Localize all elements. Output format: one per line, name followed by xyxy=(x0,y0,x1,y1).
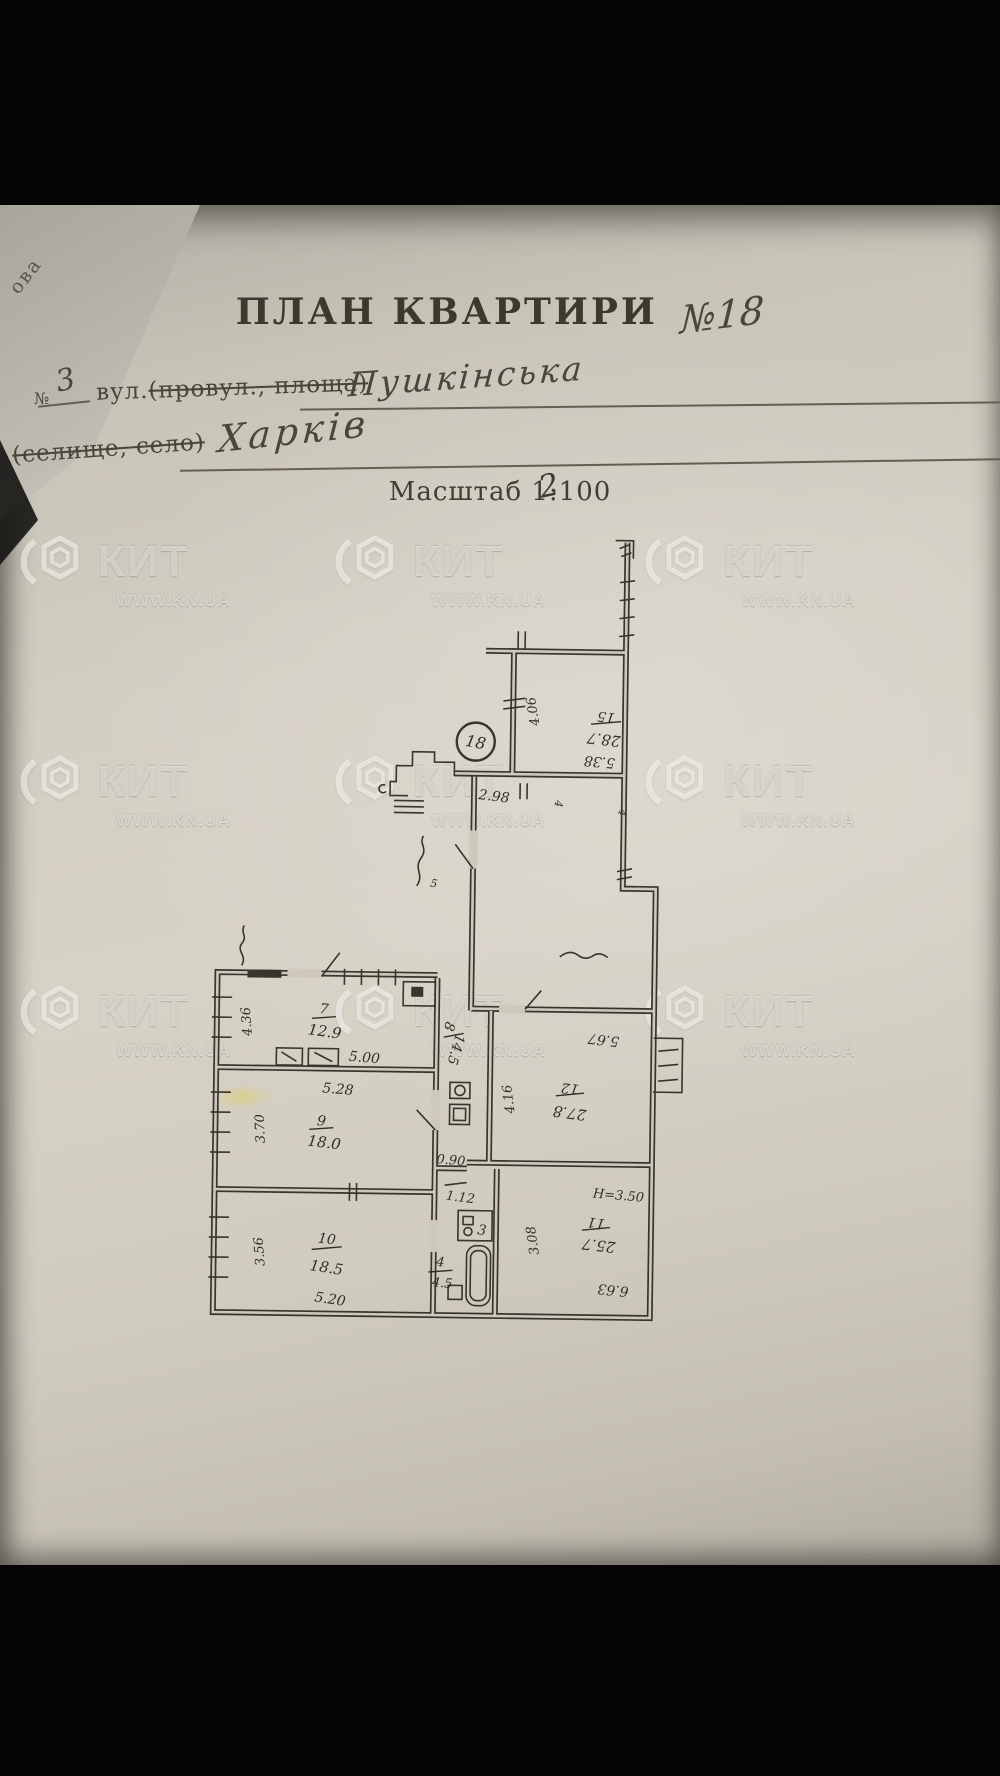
dim-112: 1.12 xyxy=(445,1189,476,1208)
document-title: ПЛАН КВАРТИРИ xyxy=(236,291,658,333)
city-line: (селище, село) Харків xyxy=(0,420,1000,480)
bay-window xyxy=(653,1038,683,1092)
room10-area: 18.5 xyxy=(309,1256,345,1279)
mark-4b: 4 xyxy=(615,807,629,817)
room7-width: 5.00 xyxy=(348,1049,380,1068)
room11-area: 25.7 xyxy=(581,1234,618,1256)
room10-width: 5.20 xyxy=(313,1289,346,1310)
dim-090: 0.90 xyxy=(436,1152,466,1169)
floor-plan-drawing: 18 15 28.7 5.38 4.06 2.98 4 4 5 7 12.9 5… xyxy=(164,526,695,1353)
room8-area: 14.5 xyxy=(444,1032,468,1066)
street-underline xyxy=(300,401,1000,410)
bathtub xyxy=(448,1245,491,1306)
handwritten-squiggles xyxy=(240,833,610,970)
street-name-handwritten: Пушкінська xyxy=(347,349,586,405)
wc-number: 3 xyxy=(476,1222,487,1239)
room10-height: 3.56 xyxy=(252,1237,269,1267)
bath-area: 4.5 xyxy=(430,1275,453,1292)
kit-brand-text: КИТ xyxy=(723,757,814,807)
room12-height: 4.16 xyxy=(500,1084,519,1116)
paper-sheet: ова ПЛАН КВАРТИРИ№18 № 3 вул.(провул., п… xyxy=(0,205,1000,1565)
mark-4a: 4 xyxy=(552,799,566,808)
apartment-badge: 18 xyxy=(457,722,496,761)
bath-number: 4 xyxy=(435,1255,446,1271)
badge-number: 18 xyxy=(464,731,488,753)
apartment-number-handwritten: №18 xyxy=(679,288,765,343)
room7-number: 7 xyxy=(319,1001,330,1018)
room9-area: 18.0 xyxy=(307,1132,343,1154)
letterbox-top xyxy=(0,0,1000,205)
kit-url-text: WWW.KN.UA xyxy=(741,811,875,831)
vestibule-width: 2.98 xyxy=(477,787,511,807)
kit-logo-icon xyxy=(20,755,82,809)
kit-logo-icon xyxy=(20,985,82,1039)
letterbox-bottom xyxy=(0,1565,1000,1776)
scale-line: Масштаб 1:1002 xyxy=(0,477,1000,507)
kit-url-text: WWW.KN.UA xyxy=(741,1041,875,1061)
room9-height: 3.70 xyxy=(253,1114,269,1144)
kitchen-fixtures xyxy=(449,1082,470,1124)
mark-5: 5 xyxy=(429,877,438,891)
city-label: (селище, село) xyxy=(11,429,205,468)
room8-number: 8 xyxy=(440,1020,458,1033)
photo-of-document: ова ПЛАН КВАРТИРИ№18 № 3 вул.(провул., п… xyxy=(0,0,1000,1776)
entrance-threshold xyxy=(247,969,281,977)
room9-width: 5.28 xyxy=(322,1080,354,1099)
room9-number: 9 xyxy=(316,1113,327,1130)
entry-steps xyxy=(379,751,455,813)
room15-height: 4.06 xyxy=(524,696,544,728)
room11-ceiling-height: H=3.50 xyxy=(591,1186,644,1205)
house-number-handwritten: 3 xyxy=(53,361,79,399)
street-label: вул.(провул., площа) xyxy=(96,370,369,405)
room11-height: 3.08 xyxy=(524,1225,543,1256)
room7-area: 12.9 xyxy=(307,1020,343,1042)
room15-width: 5.38 xyxy=(583,752,615,771)
room12-width: 5.67 xyxy=(587,1030,620,1050)
scale-text: Масштаб 1:100 xyxy=(389,477,612,507)
room10-number: 10 xyxy=(317,1231,337,1249)
room11-width: 6.63 xyxy=(597,1280,630,1299)
kit-brand-text: КИТ xyxy=(723,987,814,1037)
room7-height: 4.36 xyxy=(239,1006,256,1037)
kit-logo-icon xyxy=(20,535,82,589)
window-hatches xyxy=(208,575,635,1283)
room12-area: 27.8 xyxy=(552,1102,589,1125)
room15-area: 28.7 xyxy=(586,728,623,750)
kit-url-text: WWW.KN.UA xyxy=(741,591,875,611)
street-line: № 3 вул.(провул., площа) Пушкінська xyxy=(0,357,1000,417)
city-underline xyxy=(180,458,1000,471)
kit-brand-text: КИТ xyxy=(723,537,814,587)
